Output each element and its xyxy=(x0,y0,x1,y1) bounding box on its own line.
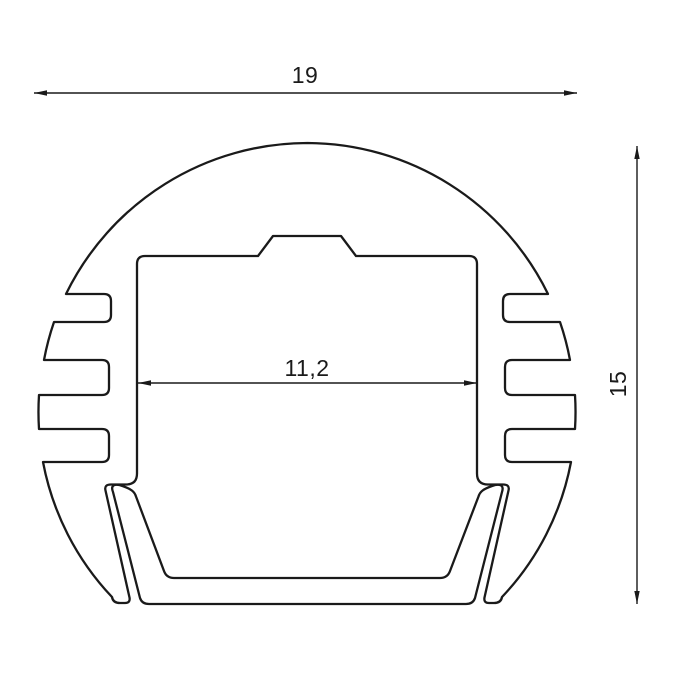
outer-width-arrow-right-icon xyxy=(564,90,577,95)
inner-width-arrow-left-icon xyxy=(138,380,151,385)
dimension-outer-width: 19 xyxy=(34,62,577,96)
drawing-canvas: 19 15 11,2 xyxy=(0,0,678,678)
bottom-channel-strip-outline xyxy=(112,485,502,604)
inner-width-arrow-right-icon xyxy=(464,380,477,385)
outer-width-dimension-value: 19 xyxy=(292,62,319,88)
inner-width-dimension-value: 11,2 xyxy=(284,355,329,381)
dimension-inner-width: 11,2 xyxy=(138,355,477,386)
overall-height-arrow-bottom-icon xyxy=(634,591,639,604)
dimension-overall-height: 15 xyxy=(605,146,640,604)
technical-drawing-svg: 19 15 11,2 xyxy=(0,0,678,678)
outer-width-arrow-left-icon xyxy=(34,90,47,95)
overall-height-dimension-value: 15 xyxy=(605,371,631,398)
overall-height-arrow-top-icon xyxy=(634,146,639,159)
